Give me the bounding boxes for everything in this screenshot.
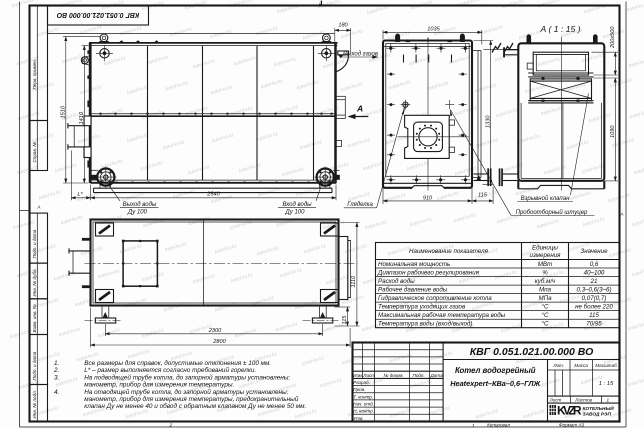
svg-text:Перв. примен.: Перв. примен. bbox=[32, 59, 37, 90]
svg-text:0,3–0,6(3–6): 0,3–0,6(3–6) bbox=[576, 286, 611, 293]
svg-text:40–100: 40–100 bbox=[584, 269, 605, 276]
svg-text:Дата: Дата bbox=[430, 373, 444, 378]
svg-text:KVZR: KVZR bbox=[557, 404, 582, 418]
svg-text:21: 21 bbox=[590, 278, 598, 285]
svg-text:2: 2 bbox=[169, 423, 173, 428]
svg-text:Утв.: Утв. bbox=[353, 416, 363, 421]
svg-text:2300: 2300 bbox=[208, 328, 222, 334]
svg-text:2800: 2800 bbox=[212, 339, 226, 345]
svg-text:1 : 15: 1 : 15 bbox=[599, 381, 614, 387]
svg-text:0,6: 0,6 bbox=[590, 261, 599, 268]
svg-text:A: A bbox=[620, 212, 624, 217]
svg-text:Лист: Лист bbox=[362, 373, 375, 378]
svg-text:Гидравлическое сопротивление к: Гидравлическое сопротивление котла bbox=[378, 295, 492, 302]
svg-text:0,07(0,7): 0,07(0,7) bbox=[582, 295, 607, 302]
svg-text:Котел водогрейный: Котел водогрейный bbox=[455, 366, 536, 375]
svg-text:МПа: МПа bbox=[538, 295, 552, 302]
svg-text:4.: 4. bbox=[54, 389, 59, 396]
svg-text:Гляделка: Гляделка bbox=[347, 202, 373, 208]
svg-text:Мпа: Мпа bbox=[539, 286, 552, 293]
svg-text:Т. контр.: Т. контр. bbox=[353, 394, 373, 399]
svg-text:180: 180 bbox=[338, 23, 348, 29]
svg-text:1: 1 bbox=[607, 397, 610, 402]
svg-text:Нач. отд.: Нач. отд. bbox=[353, 402, 374, 407]
svg-text:На отводящей трубе котла, до з: На отводящей трубе котла, до запорной ар… bbox=[84, 388, 289, 396]
svg-text:не более 220: не более 220 bbox=[575, 303, 613, 310]
svg-text:2540: 2540 bbox=[206, 192, 220, 198]
svg-text:115: 115 bbox=[478, 193, 488, 199]
svg-text:Значение: Значение bbox=[580, 248, 608, 255]
svg-text:Масштаб: Масштаб bbox=[595, 363, 617, 368]
svg-text:Подп. и дата: Подп. и дата bbox=[32, 351, 37, 380]
svg-text:Листов: Листов bbox=[574, 397, 592, 402]
svg-text:Инв. № дубл.: Инв. № дубл. bbox=[32, 268, 37, 296]
svg-text:Диапазон рабочего регулировани: Диапазон рабочего регулирования bbox=[377, 269, 480, 276]
svg-text:Единицы: Единицы bbox=[532, 245, 558, 252]
svg-text:A: A bbox=[37, 205, 41, 210]
svg-text:Наименование показателя: Наименование показателя bbox=[409, 248, 489, 255]
svg-text:3.: 3. bbox=[54, 374, 59, 381]
svg-text:Подп. и дата: Подп. и дата bbox=[32, 229, 37, 258]
svg-text:Ду 100: Ду 100 bbox=[285, 210, 306, 216]
svg-text:2: 2 bbox=[318, 1, 322, 6]
svg-text:1.: 1. bbox=[54, 360, 59, 367]
svg-text:Изм.: Изм. bbox=[353, 373, 363, 378]
svg-text:1510: 1510 bbox=[60, 105, 66, 118]
svg-text:1330: 1330 bbox=[485, 115, 491, 128]
svg-text:Формат А3: Формат А3 bbox=[559, 423, 585, 428]
svg-text:ЗАВОД РЭП: ЗАВОД РЭП bbox=[583, 412, 612, 418]
svg-text:Пробоотборный штуцер: Пробоотборный штуцер bbox=[516, 209, 588, 216]
svg-text:Температура уходящих газов: Температура уходящих газов bbox=[378, 303, 466, 310]
svg-text:измерения: измерения bbox=[530, 252, 562, 259]
svg-text:Расход воды: Расход воды bbox=[378, 278, 415, 285]
svg-text:115: 115 bbox=[589, 312, 599, 319]
svg-text:Масса: Масса bbox=[574, 363, 588, 368]
svg-text:А: А bbox=[356, 103, 363, 113]
svg-text:Рабочее давление воды: Рабочее давление воды bbox=[378, 286, 448, 293]
svg-text:Лит.: Лит. bbox=[552, 363, 564, 368]
svg-text:%: % bbox=[542, 269, 548, 276]
svg-text:1090: 1090 bbox=[610, 125, 616, 138]
svg-text:№ докум.: № докум. bbox=[384, 373, 404, 378]
svg-text:манометр, прибор для измерения: манометр, прибор для измерения температу… bbox=[84, 381, 234, 389]
svg-text:Разраб.: Разраб. bbox=[353, 380, 370, 385]
svg-text:Выход воды: Выход воды bbox=[123, 202, 157, 208]
svg-text:Инв. № подл.: Инв. № подл. bbox=[32, 390, 37, 419]
svg-text:Взам. инв. №: Взам. инв. № bbox=[32, 304, 37, 332]
svg-text:куб.м/ч: куб.м/ч bbox=[535, 278, 556, 285]
svg-text:КВГ 0.051.021.00.000 ВО: КВГ 0.051.021.00.000 ВО bbox=[56, 11, 139, 18]
svg-text:Выход газов: Выход газов bbox=[343, 51, 378, 57]
svg-text:200х500: 200х500 bbox=[610, 26, 616, 49]
svg-text:Все размеры для справок, допус: Все размеры для справок, допустимые откл… bbox=[84, 359, 271, 367]
svg-text:Пров.: Пров. bbox=[353, 387, 365, 392]
svg-text:Номинальная мощность: Номинальная мощность bbox=[378, 261, 450, 268]
svg-text:Взрывной клапан: Взрывной клапан bbox=[521, 195, 570, 202]
svg-text:°С: °С bbox=[542, 321, 549, 328]
svg-text:70/95: 70/95 bbox=[586, 321, 602, 328]
svg-text:КВГ 0.051.021.00.000 ВО: КВГ 0.051.021.00.000 ВО bbox=[470, 346, 594, 358]
svg-text:Ду 100: Ду 100 bbox=[127, 210, 148, 216]
svg-text:1035: 1035 bbox=[427, 27, 440, 33]
svg-text:Максимальная рабочая температу: Максимальная рабочая температура воды bbox=[378, 312, 506, 319]
svg-text:Температура воды (вход/выход): Температура воды (вход/выход) bbox=[378, 321, 472, 328]
svg-text:115: 115 bbox=[342, 315, 348, 325]
svg-text:L* – размер выполняется соглас: L* – размер выполняется согласно требова… bbox=[84, 366, 256, 374]
svg-text:МВт: МВт bbox=[538, 261, 552, 268]
svg-text:°С: °С bbox=[542, 303, 549, 310]
svg-text:Справ. №: Справ. № bbox=[32, 142, 37, 163]
svg-text:Heatexpert–КВа–0,6–ГЛЖ: Heatexpert–КВа–0,6–ГЛЖ bbox=[450, 379, 541, 388]
svg-text:клапан Ду не менее 40 и обвод: клапан Ду не менее 40 и обвод с обратным… bbox=[84, 402, 306, 410]
svg-text:На подводящей трубе котла, до: На подводящей трубе котла, до запорной а… bbox=[84, 373, 290, 381]
svg-text:А ( 1 : 15 ): А ( 1 : 15 ) bbox=[539, 24, 580, 34]
svg-text:Лист: Лист bbox=[549, 397, 562, 402]
svg-text:1: 1 bbox=[472, 423, 475, 428]
svg-text:Подп.: Подп. bbox=[413, 373, 425, 378]
svg-text:1110: 1110 bbox=[351, 275, 357, 288]
svg-text:Вход воды: Вход воды bbox=[282, 202, 312, 208]
svg-text:2.: 2. bbox=[53, 367, 59, 374]
svg-text:Копировал: Копировал bbox=[487, 423, 510, 428]
svg-text:L*: L* bbox=[77, 192, 83, 198]
svg-text:Н. контр.: Н. контр. bbox=[353, 409, 374, 414]
svg-text:манометр, прибор для измерения: манометр, прибор для измерения температу… bbox=[84, 395, 299, 403]
svg-text:°С: °С bbox=[542, 312, 549, 319]
svg-text:1410: 1410 bbox=[79, 111, 85, 124]
svg-text:910: 910 bbox=[423, 195, 433, 201]
